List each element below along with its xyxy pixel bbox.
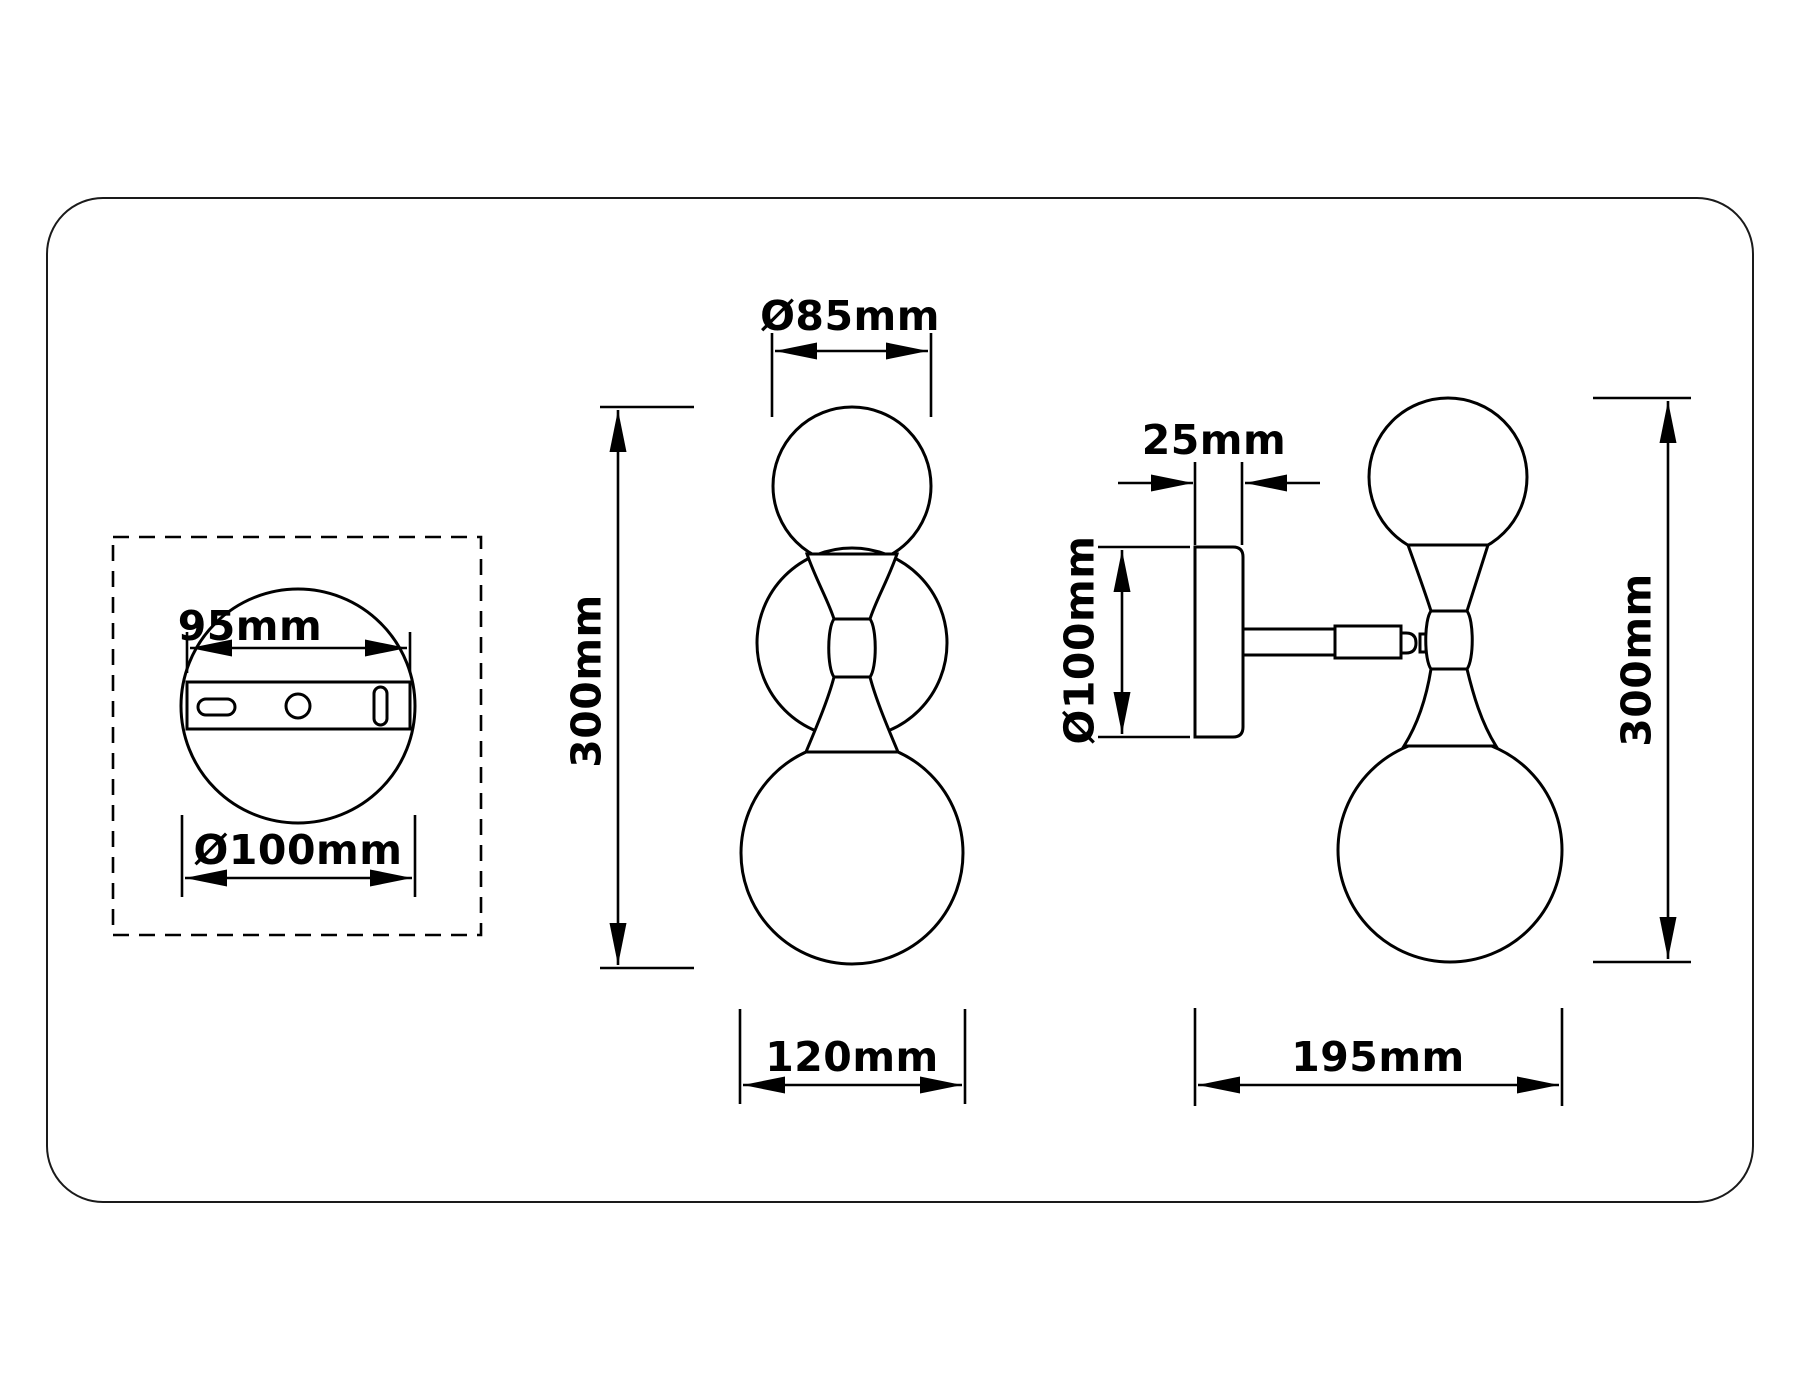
side-height-dimension: 300mm	[1593, 398, 1691, 962]
bracket-width-dimension: 95mm	[178, 602, 410, 673]
side-arm-sleeve	[1335, 626, 1401, 658]
plate-diameter-label: Ø100mm	[194, 826, 403, 874]
front-width-label: 120mm	[765, 1033, 939, 1081]
side-lower-holder	[1404, 669, 1496, 746]
side-center-hub	[1426, 611, 1473, 669]
front-height-label: 300mm	[562, 594, 610, 768]
front-bottom-globe	[741, 742, 963, 964]
side-view: 25mm Ø100mm 195mm 300mm	[1055, 398, 1691, 1106]
globe-diameter-label: Ø85mm	[760, 292, 940, 340]
globe-diameter-dimension: Ø85mm	[760, 292, 940, 417]
side-depth-label: 195mm	[1291, 1033, 1465, 1081]
side-bottom-globe	[1338, 738, 1562, 962]
wall-box-dashed-outline	[113, 537, 481, 935]
mounting-plate-view: 95mm Ø100mm	[113, 537, 481, 935]
plate-diameter-dimension: Ø100mm	[182, 815, 415, 897]
front-width-dimension: 120mm	[740, 1009, 965, 1104]
technical-drawing-page: 95mm Ø100mm Ø85mm	[0, 0, 1800, 1400]
side-arm-cap	[1401, 633, 1416, 653]
side-plate-diameter-label: Ø100mm	[1055, 536, 1103, 745]
side-upper-holder	[1408, 545, 1488, 611]
front-lower-holder	[806, 677, 898, 752]
side-arm-bar	[1243, 629, 1335, 655]
front-center-hub	[829, 619, 876, 677]
plate-thickness-dimension: 25mm	[1118, 416, 1320, 545]
front-top-globe	[773, 407, 931, 565]
front-upper-holder	[807, 554, 897, 619]
side-plate-diameter-dimension: Ø100mm	[1055, 536, 1190, 745]
side-height-label: 300mm	[1612, 573, 1660, 747]
side-top-globe	[1369, 398, 1527, 556]
side-wall-plate	[1195, 547, 1243, 737]
plate-thickness-label: 25mm	[1142, 416, 1287, 464]
front-view: Ø85mm 300mm 120mm	[562, 292, 965, 1104]
technical-drawing-canvas: 95mm Ø100mm Ø85mm	[0, 0, 1800, 1400]
bracket-width-label: 95mm	[178, 602, 323, 650]
side-depth-dimension: 195mm	[1195, 1008, 1562, 1106]
front-height-dimension: 300mm	[562, 407, 694, 968]
